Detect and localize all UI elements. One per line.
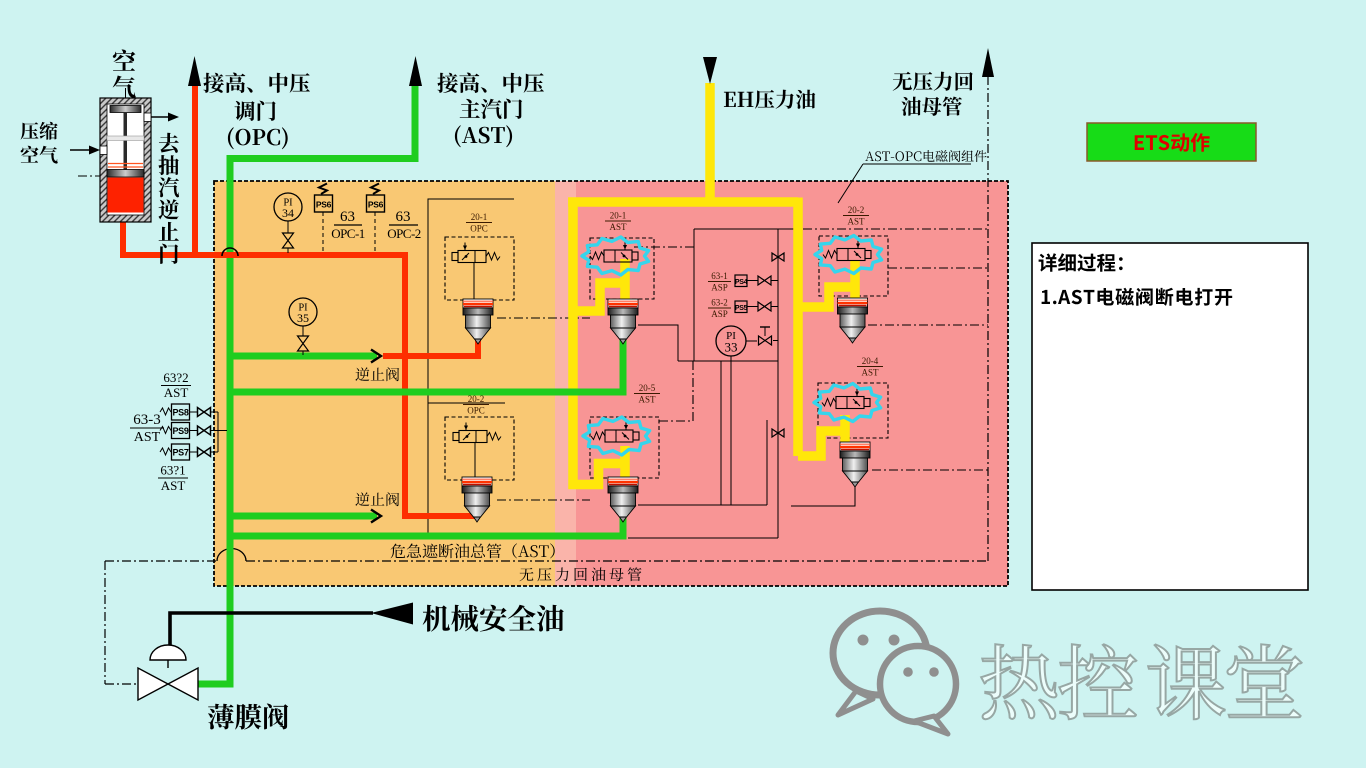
svg-text:63-2: 63-2	[711, 298, 728, 308]
svg-text:63: 63	[340, 209, 355, 225]
svg-text:35: 35	[297, 311, 309, 325]
svg-text:AST: AST	[847, 217, 865, 227]
svg-text:PS4: PS4	[735, 279, 748, 286]
svg-text:PS6: PS6	[316, 200, 332, 210]
svg-text:20-4: 20-4	[862, 356, 879, 366]
svg-text:AST: AST	[861, 368, 879, 378]
svg-text:63: 63	[396, 209, 411, 225]
svg-text:PS9: PS9	[172, 426, 188, 436]
svg-text:20-5: 20-5	[639, 383, 656, 393]
svg-text:OPC: OPC	[467, 406, 485, 416]
svg-text:AST: AST	[161, 478, 186, 493]
svg-text:63-3: 63-3	[133, 412, 161, 428]
svg-text:20-1: 20-1	[610, 211, 627, 221]
svg-text:63?1: 63?1	[160, 463, 185, 478]
svg-text:20-1: 20-1	[471, 212, 488, 222]
svg-text:63-1: 63-1	[711, 271, 728, 281]
svg-text:OPC-1: OPC-1	[331, 226, 365, 241]
svg-text:63?2: 63?2	[163, 370, 188, 385]
svg-text:OPC: OPC	[470, 224, 488, 234]
svg-text:20-2: 20-2	[848, 205, 865, 215]
svg-text:PS8: PS8	[172, 408, 188, 418]
svg-text:PS5: PS5	[735, 305, 748, 312]
svg-text:AST: AST	[638, 395, 656, 405]
svg-text:20-2: 20-2	[468, 394, 485, 404]
svg-text:ASP: ASP	[711, 309, 728, 319]
svg-text:ASP: ASP	[711, 283, 728, 293]
svg-text:AST: AST	[164, 385, 189, 400]
svg-text:OPC-2: OPC-2	[387, 226, 421, 241]
svg-text:AST: AST	[134, 430, 161, 445]
svg-text:AST: AST	[609, 222, 627, 232]
svg-text:33: 33	[725, 340, 738, 355]
svg-text:PS7: PS7	[172, 448, 188, 458]
svg-text:34: 34	[282, 206, 294, 220]
svg-text:PS6: PS6	[368, 200, 384, 210]
